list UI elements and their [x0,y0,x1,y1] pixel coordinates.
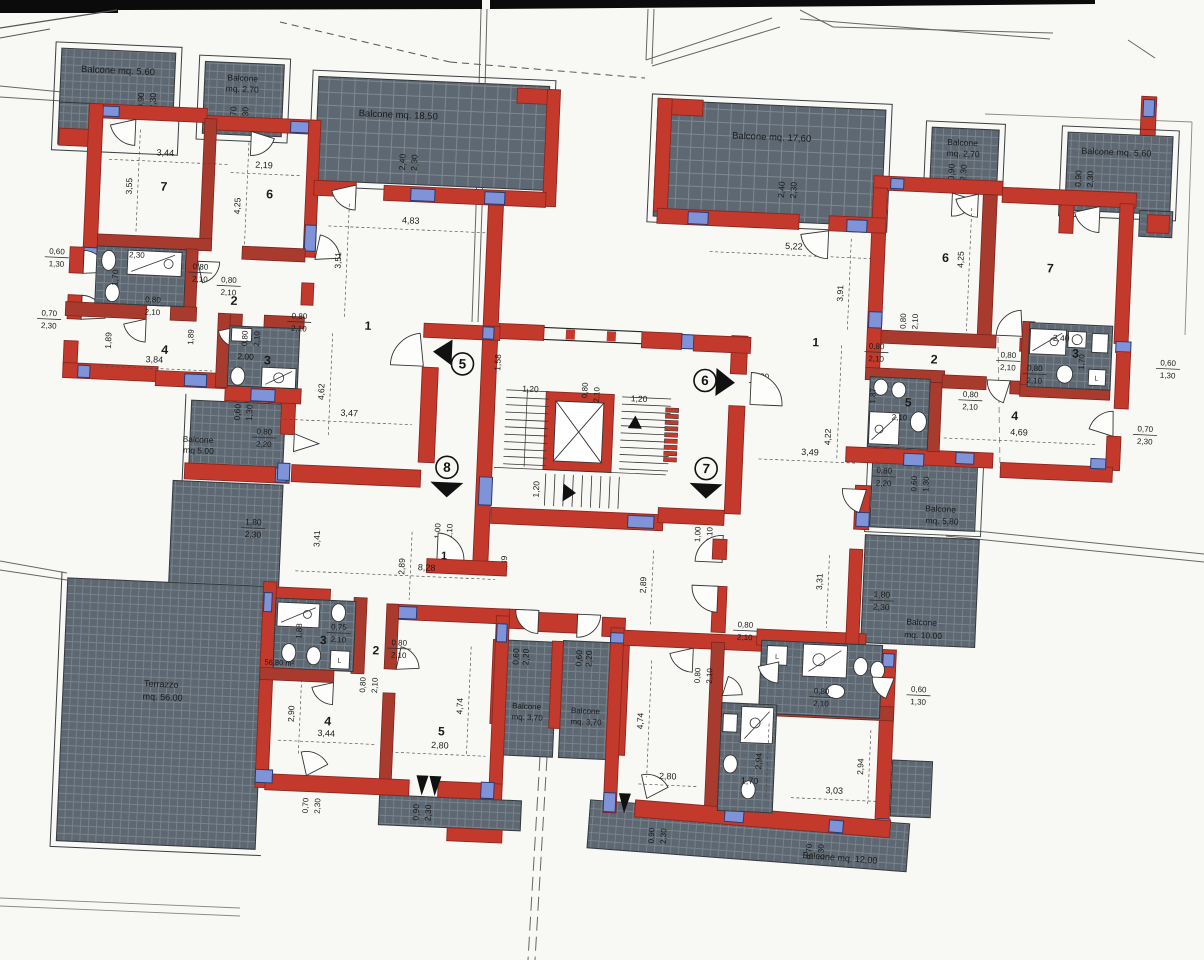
svg-text:L: L [1094,375,1098,382]
svg-text:0,80: 0,80 [291,311,307,321]
svg-text:5: 5 [458,356,467,371]
svg-text:2,30: 2,30 [816,843,826,859]
svg-text:2,10: 2,10 [1026,376,1042,386]
svg-text:2,00: 2,00 [237,351,254,362]
svg-text:2,90: 2,90 [286,705,297,722]
svg-text:2,40: 2,40 [397,153,408,170]
svg-text:1,20: 1,20 [531,480,542,497]
svg-text:4,25: 4,25 [955,251,966,268]
svg-text:Balcone: Balcone [182,434,213,445]
svg-text:1,88: 1,88 [294,623,304,639]
svg-text:2,20: 2,20 [583,650,594,667]
svg-text:2,10: 2,10 [910,313,920,329]
svg-text:0,90: 0,90 [1073,170,1084,187]
svg-text:3,55: 3,55 [124,177,135,194]
svg-text:2,30: 2,30 [244,529,261,540]
svg-text:0,80: 0,80 [869,342,885,352]
svg-text:mq. 5,80: mq. 5,80 [925,515,959,526]
svg-text:0,70: 0,70 [301,797,311,813]
svg-text:1: 1 [364,319,372,333]
svg-text:0,90: 0,90 [411,804,422,821]
svg-text:2,20: 2,20 [520,648,531,665]
svg-text:4: 4 [324,714,332,728]
svg-text:0,75: 0,75 [331,622,347,632]
svg-text:1,20: 1,20 [631,393,648,404]
svg-text:1,89: 1,89 [103,332,114,349]
svg-text:mq. 2,70: mq. 2,70 [226,83,260,94]
svg-text:1,20: 1,20 [522,384,539,395]
svg-text:Balcone: Balcone [925,503,956,514]
svg-text:2,30: 2,30 [41,321,57,331]
svg-text:4,74: 4,74 [635,712,646,729]
svg-text:2,80: 2,80 [431,740,449,751]
svg-text:1,30: 1,30 [48,259,64,269]
svg-text:3,49: 3,49 [801,447,819,458]
svg-text:5,22: 5,22 [785,241,803,252]
svg-text:2,10: 2,10 [370,677,380,693]
svg-text:mq. 3,70: mq. 3,70 [511,712,543,722]
svg-text:mq. 10.00: mq. 10.00 [904,629,942,641]
svg-text:56,80 m²: 56,80 m² [264,658,294,668]
svg-text:Balcone: Balcone [947,137,978,148]
svg-text:mq. 2,70: mq. 2,70 [946,148,980,159]
svg-text:2,10: 2,10 [868,354,884,364]
svg-text:0,80: 0,80 [221,275,237,285]
svg-text:0,70: 0,70 [41,308,57,318]
svg-text:2,30: 2,30 [423,804,434,821]
svg-text:2,94: 2,94 [855,758,866,775]
svg-text:2,30: 2,30 [958,164,969,181]
svg-text:1,89: 1,89 [186,329,196,345]
svg-text:0,60: 0,60 [49,247,65,257]
svg-text:Balcone: Balcone [571,706,601,716]
svg-text:0,80: 0,80 [580,382,590,398]
svg-text:6: 6 [942,251,950,265]
svg-text:3,44: 3,44 [156,147,174,158]
svg-text:0,80: 0,80 [145,295,161,305]
svg-text:1,80: 1,80 [873,589,890,600]
svg-text:2: 2 [930,352,938,366]
svg-text:2,20: 2,20 [256,439,272,449]
svg-text:1,70: 1,70 [110,269,121,286]
svg-text:2,30: 2,30 [1085,170,1096,187]
svg-text:1: 1 [441,550,448,562]
svg-text:2,30: 2,30 [129,250,145,260]
svg-text:2,89: 2,89 [638,576,649,593]
svg-text:3,47: 3,47 [340,408,358,419]
svg-text:0,80: 0,80 [1000,350,1016,360]
svg-text:7: 7 [702,461,710,476]
svg-text:1,30: 1,30 [1160,371,1176,381]
svg-text:3,03: 3,03 [825,785,843,796]
svg-text:0,80: 0,80 [1027,364,1043,374]
svg-text:5: 5 [438,724,446,738]
svg-text:3: 3 [264,353,272,367]
svg-text:7: 7 [160,180,168,194]
svg-text:1,58: 1,58 [492,354,503,371]
svg-text:0,60: 0,60 [911,685,927,695]
svg-text:4,25: 4,25 [232,197,243,214]
svg-text:0,80: 0,80 [240,330,250,346]
svg-text:3,51: 3,51 [333,252,344,269]
svg-text:6: 6 [266,187,274,201]
svg-text:4,83: 4,83 [402,215,420,226]
svg-text:Balcone: Balcone [227,72,258,83]
svg-text:1,00: 1,00 [693,526,703,542]
svg-text:2,10: 2,10 [291,324,307,334]
svg-text:3: 3 [1072,346,1080,360]
svg-text:2,10: 2,10 [391,651,407,661]
svg-text:Terrazzo: Terrazzo [144,678,179,689]
svg-text:2,80: 2,80 [659,771,677,782]
svg-text:2,10: 2,10 [962,402,978,412]
svg-text:L: L [337,658,341,665]
svg-text:2,10: 2,10 [892,413,908,423]
svg-text:4: 4 [1011,409,1019,423]
svg-text:3,44: 3,44 [317,728,335,739]
svg-text:5: 5 [905,395,913,409]
svg-text:mq. 3,70: mq. 3,70 [570,717,602,727]
svg-text:0,80: 0,80 [876,466,892,476]
svg-text:8,28: 8,28 [418,562,436,573]
svg-text:0,80: 0,80 [391,638,407,648]
svg-text:2,10: 2,10 [813,699,829,709]
svg-text:2,10: 2,10 [705,667,715,683]
svg-text:1,70: 1,70 [741,775,759,786]
svg-text:4,74: 4,74 [454,697,465,714]
svg-text:0,70: 0,70 [804,843,814,859]
svg-text:0,60: 0,60 [232,403,243,420]
svg-text:0,80: 0,80 [898,313,908,329]
svg-text:8: 8 [443,460,452,475]
svg-text:0,80: 0,80 [693,667,703,683]
svg-text:0,90: 0,90 [946,163,957,180]
svg-text:1,30: 1,30 [244,404,255,421]
svg-text:2,30: 2,30 [659,828,669,844]
svg-text:2,10: 2,10 [252,330,262,346]
svg-text:1: 1 [812,335,820,349]
svg-text:mq 5.00: mq 5.00 [183,445,214,456]
svg-text:Balcone: Balcone [512,701,542,711]
svg-text:2,20: 2,20 [876,479,892,489]
svg-text:L: L [775,654,779,661]
svg-text:1,30: 1,30 [910,697,926,707]
svg-text:3,31: 3,31 [814,573,825,590]
svg-text:2,10: 2,10 [192,275,208,285]
svg-text:0,80: 0,80 [256,427,272,437]
svg-text:2,94: 2,94 [753,752,764,769]
svg-text:3,41: 3,41 [311,530,322,547]
svg-text:mq. 56.00: mq. 56.00 [142,691,182,703]
svg-text:2,30: 2,30 [873,602,890,613]
svg-text:2,19: 2,19 [255,160,273,171]
svg-text:2,10: 2,10 [220,288,236,298]
svg-text:2,10: 2,10 [737,633,753,643]
svg-text:2,30: 2,30 [788,181,799,198]
svg-text:0,60: 0,60 [1160,358,1176,368]
svg-text:0,60: 0,60 [909,475,919,491]
svg-text:3: 3 [320,633,328,647]
svg-text:3,84: 3,84 [145,354,163,365]
svg-text:0,60: 0,60 [510,648,521,665]
svg-text:0,80: 0,80 [358,676,368,692]
svg-text:2,40: 2,40 [1053,333,1070,344]
svg-text:2,30: 2,30 [1137,437,1153,447]
svg-text:Balcone: Balcone [906,617,937,628]
svg-text:1,80: 1,80 [245,517,262,528]
svg-text:3,91: 3,91 [835,285,846,302]
svg-text:2,30: 2,30 [313,797,323,813]
svg-text:2,10: 2,10 [1000,363,1016,373]
svg-text:0,60: 0,60 [573,650,584,667]
svg-text:2,10: 2,10 [330,635,346,645]
svg-text:2,40: 2,40 [776,181,787,198]
svg-text:2,10: 2,10 [592,386,602,402]
svg-text:0,90: 0,90 [647,827,657,843]
svg-text:0,80: 0,80 [737,620,753,630]
svg-text:4,22: 4,22 [822,428,833,445]
svg-text:2: 2 [372,643,380,657]
svg-text:1,30: 1,30 [921,476,931,492]
svg-text:0,80: 0,80 [193,262,209,272]
svg-text:2,30: 2,30 [409,154,420,171]
svg-text:4,62: 4,62 [316,383,327,400]
svg-text:2,89: 2,89 [396,558,407,575]
svg-text:4,69: 4,69 [1010,427,1028,438]
svg-text:1,87: 1,87 [868,387,878,403]
svg-text:7: 7 [1046,261,1054,275]
svg-text:0,80: 0,80 [814,687,830,697]
svg-text:6: 6 [701,373,710,388]
svg-text:0,70: 0,70 [1137,424,1153,434]
svg-text:0,80: 0,80 [963,390,979,400]
svg-text:2,10: 2,10 [144,307,160,317]
